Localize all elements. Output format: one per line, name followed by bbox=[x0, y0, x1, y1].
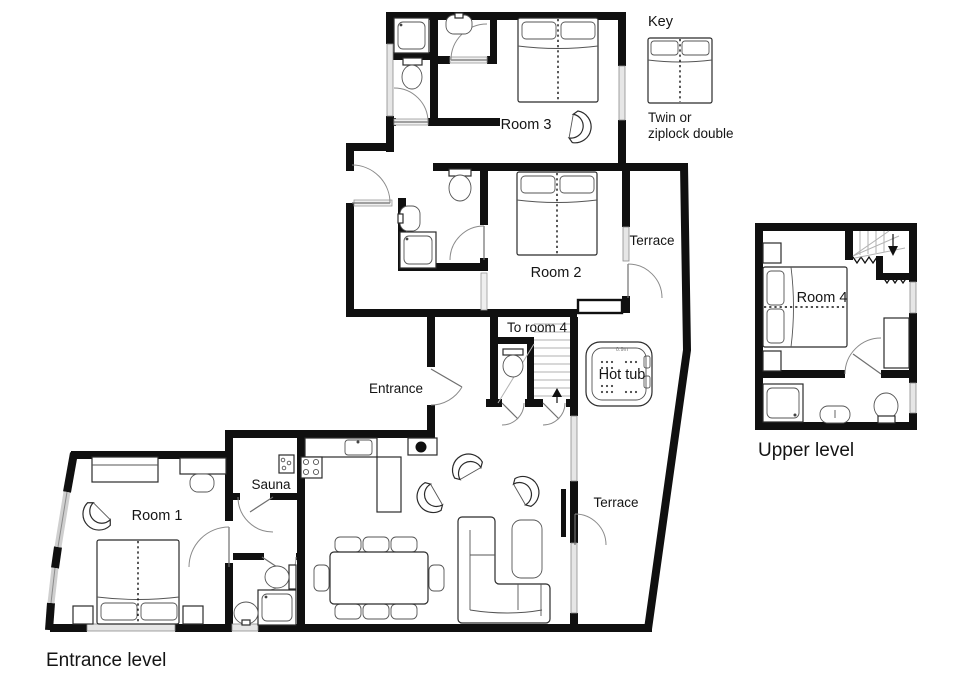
sliding-door-handle bbox=[561, 489, 566, 537]
room1-label: Room 1 bbox=[132, 508, 183, 524]
bed-room4 bbox=[763, 267, 847, 347]
desk-room1 bbox=[180, 458, 226, 474]
hot-tub-label: Hot tub bbox=[599, 367, 646, 383]
entrance-level-title: Entrance level bbox=[46, 650, 166, 671]
shower-room3 bbox=[394, 18, 429, 53]
nightstand-room1-right bbox=[183, 606, 203, 624]
kitchen-stove bbox=[301, 457, 322, 478]
armchair-living-3 bbox=[511, 471, 544, 509]
armchair-living-2 bbox=[447, 448, 485, 481]
stair-closet-door-right bbox=[543, 403, 565, 425]
stair-direction-arrow bbox=[552, 388, 562, 397]
entry-fixture bbox=[408, 438, 437, 455]
wc-door-room3 bbox=[394, 88, 428, 122]
terrace-lower-label: Terrace bbox=[593, 495, 638, 510]
to-room4-label: To room 4 bbox=[507, 320, 568, 335]
stair-closet-door-left bbox=[502, 403, 524, 425]
kitchen-island bbox=[377, 457, 401, 512]
armchair-room1 bbox=[76, 500, 113, 537]
room2-terrace-door bbox=[628, 264, 662, 298]
room2-bath-door bbox=[450, 226, 484, 260]
shower-shower-room bbox=[258, 590, 296, 625]
nightstand-room4-top bbox=[763, 243, 781, 263]
bench-room1 bbox=[92, 457, 158, 482]
toilet-room3 bbox=[402, 58, 422, 89]
entrance-level-plan: Room 3 Terrace Room 2 To room 4 Hot tub … bbox=[46, 12, 688, 671]
shower-room4 bbox=[763, 384, 803, 422]
floor-plan-page: Room 3 Terrace Room 2 To room 4 Hot tub … bbox=[0, 0, 960, 679]
room4-furniture bbox=[763, 243, 909, 423]
desk-chair-room1 bbox=[190, 474, 214, 492]
sink-room2 bbox=[398, 206, 420, 231]
sauna-label: Sauna bbox=[251, 477, 291, 492]
room2-furniture bbox=[398, 169, 597, 268]
hot-tub-depth-note: 0.9m bbox=[616, 347, 629, 353]
toilet-shower-room bbox=[265, 565, 296, 589]
sink-room4 bbox=[820, 406, 850, 423]
key-caption-line1: Twin or bbox=[648, 110, 692, 125]
armchair-living-1 bbox=[411, 481, 444, 519]
room2-label: Room 2 bbox=[531, 265, 582, 281]
nightstand-room4-bottom bbox=[763, 351, 781, 371]
toilet-stair-closet bbox=[503, 349, 523, 377]
bed-room2 bbox=[517, 172, 597, 255]
hallway-door bbox=[352, 165, 390, 203]
coffee-table bbox=[512, 520, 542, 578]
toilet-room2 bbox=[449, 169, 471, 201]
upper-door bbox=[845, 338, 881, 374]
sink-room3 bbox=[446, 13, 472, 34]
stair-closet-furniture bbox=[503, 349, 523, 377]
nightstand-room1-left bbox=[73, 606, 93, 624]
key-caption-line2: ziplock double bbox=[648, 126, 734, 141]
terrace-upper-label: Terrace bbox=[629, 233, 674, 248]
room1-door bbox=[189, 527, 229, 567]
sofa-group bbox=[411, 448, 550, 623]
armchair-room3 bbox=[568, 110, 593, 145]
entrance-label: Entrance bbox=[369, 381, 423, 396]
sauna-door bbox=[238, 497, 273, 532]
entrance-door bbox=[431, 369, 462, 405]
living-terrace-door bbox=[575, 514, 606, 545]
kitchen-furniture bbox=[301, 438, 437, 512]
room4-label: Room 4 bbox=[797, 290, 848, 306]
bed-room1 bbox=[97, 540, 179, 624]
toilet-room4 bbox=[874, 393, 898, 423]
dining-set bbox=[314, 537, 444, 619]
key-bed-symbol bbox=[648, 38, 712, 103]
key-title: Key bbox=[648, 14, 674, 30]
upper-stairs bbox=[853, 231, 905, 258]
wardrobe-room4 bbox=[884, 318, 909, 368]
sauna-stove bbox=[279, 455, 294, 473]
key-legend: Key Twin or ziplock double bbox=[648, 14, 734, 141]
floor-plan-drawing: Room 3 Terrace Room 2 To room 4 Hot tub … bbox=[0, 0, 960, 679]
room3-label: Room 3 bbox=[501, 117, 552, 133]
bed-room3 bbox=[518, 18, 598, 102]
sink-shower-room bbox=[234, 602, 258, 625]
dining-table bbox=[330, 552, 428, 604]
shower-room2 bbox=[400, 232, 436, 268]
upper-level-title: Upper level bbox=[758, 440, 854, 461]
upper-level-plan: Room 4 Upper level bbox=[755, 223, 917, 461]
